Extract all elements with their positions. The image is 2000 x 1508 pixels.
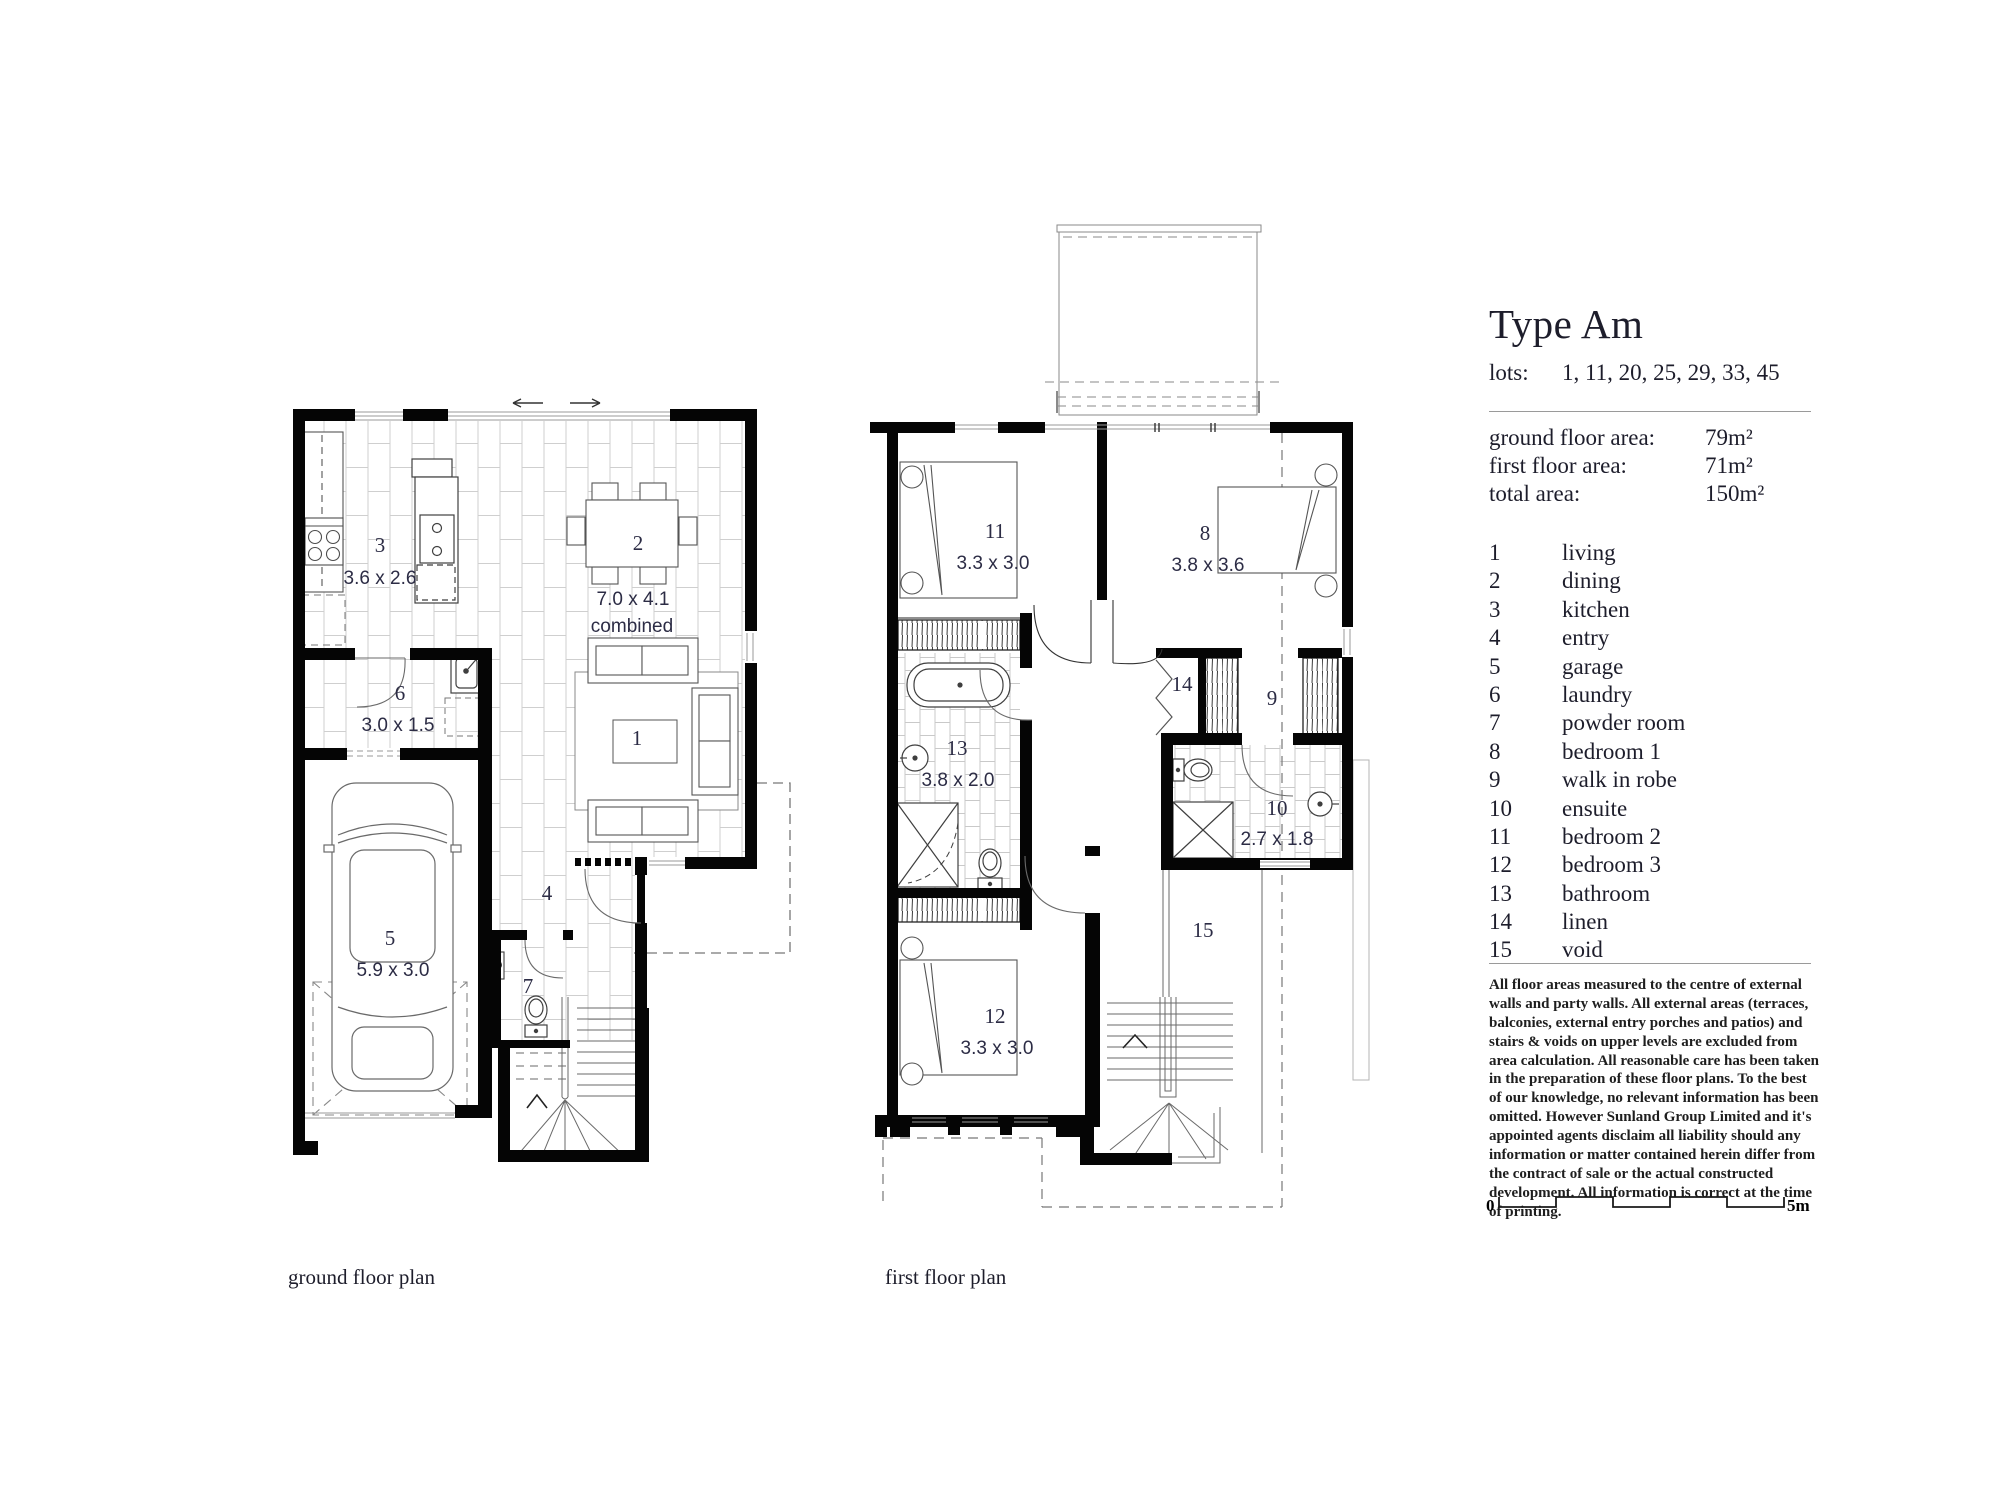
room-number: 8 <box>1489 739 1501 764</box>
room-name: bedroom 3 <box>1562 852 1661 878</box>
room-number: 1 <box>1489 540 1501 565</box>
kitchen-island-icon <box>412 459 458 603</box>
room-number: 2 <box>1489 568 1501 593</box>
area-label: total area: <box>1489 481 1580 506</box>
room-number: 14 <box>1489 909 1512 934</box>
room-number: 15 <box>1489 937 1512 962</box>
room-number: 7 <box>1489 710 1501 735</box>
room-row: 7 powder room <box>1489 710 1829 738</box>
room-name: ensuite <box>1562 796 1627 822</box>
label-dining: 2 <box>633 531 644 555</box>
room-number: 10 <box>1489 796 1512 821</box>
label-dining-dim: 7.0 x 4.1 <box>597 589 670 610</box>
room-name: kitchen <box>1562 597 1630 623</box>
lots-row: lots: 1, 11, 20, 25, 29, 33, 45 <box>1489 360 1829 386</box>
lots-values: 1, 11, 20, 25, 29, 33, 45 <box>1562 360 1780 386</box>
label-bath-dim: 3.8 x 2.0 <box>922 770 995 791</box>
area-row: first floor area: 71m² <box>1489 453 1829 481</box>
scale-end: 5m <box>1787 1196 1810 1215</box>
toilet-icon <box>1173 759 1212 781</box>
room-row: 15 void <box>1489 937 1829 965</box>
room-name: living <box>1562 540 1616 566</box>
area-row: total area: 150m² <box>1489 481 1829 509</box>
label-laundry-dim: 3.0 x 1.5 <box>362 715 435 736</box>
first-floor-caption: first floor plan <box>885 1265 1006 1290</box>
room-name: garage <box>1562 654 1623 680</box>
room-number: 3 <box>1489 597 1501 622</box>
room-row: 5 garage <box>1489 654 1829 682</box>
scale-bar: 0 5m <box>1484 1194 1830 1220</box>
bathtub-icon <box>907 663 1010 707</box>
coffee-table-icon <box>613 720 677 763</box>
room-row: 6 laundry <box>1489 682 1829 710</box>
label-bed1: 8 <box>1200 521 1211 545</box>
room-legend: 1 living 2 dining 3 kitchen 4 entry 5 ga… <box>1489 540 1829 966</box>
label-linen: 14 <box>1172 672 1194 696</box>
floor-plan-sheet: 1 2 7.0 x 4.1 combined 3 3.6 x 2.6 4 5 5… <box>0 0 2000 1508</box>
room-number: 11 <box>1489 824 1511 849</box>
label-entry: 4 <box>542 881 553 905</box>
disclaimer-text: All floor areas measured to the centre o… <box>1489 976 1823 1222</box>
room-row: 1 living <box>1489 540 1829 568</box>
label-powder: 7 <box>523 974 534 998</box>
label-bed3-dim: 3.3 x 3.0 <box>961 1038 1034 1059</box>
up-arrow-icon <box>527 1095 547 1108</box>
room-row: 10 ensuite <box>1489 796 1829 824</box>
label-kitchen-dim: 3.6 x 2.6 <box>344 568 417 589</box>
label-bed2: 11 <box>985 519 1005 543</box>
scale-bar-line <box>1499 1197 1784 1207</box>
bed-icon <box>1218 464 1337 597</box>
room-name: void <box>1562 937 1603 963</box>
label-kitchen: 3 <box>375 533 386 557</box>
shower-icon <box>897 803 958 887</box>
label-bed3: 12 <box>985 1004 1006 1028</box>
label-bath: 13 <box>947 736 968 760</box>
room-row: 11 bedroom 2 <box>1489 824 1829 852</box>
up-arrow-icon <box>1123 1035 1147 1048</box>
label-living: 1 <box>632 726 643 750</box>
area-value: 71m² <box>1705 453 1753 479</box>
terrace-outline <box>1045 225 1283 415</box>
stairs-icon <box>1107 870 1262 1163</box>
room-name: dining <box>1562 568 1621 594</box>
label-laundry: 6 <box>395 681 406 705</box>
room-number: 9 <box>1489 767 1501 792</box>
room-row: 4 entry <box>1489 625 1829 653</box>
area-value: 79m² <box>1705 425 1753 451</box>
bifold-door-icon <box>1156 660 1172 735</box>
label-void: 15 <box>1193 918 1214 942</box>
area-label: ground floor area: <box>1489 425 1655 450</box>
room-name: laundry <box>1562 682 1632 708</box>
area-table: ground floor area: 79m² first floor area… <box>1489 425 1829 509</box>
room-name: linen <box>1562 909 1608 935</box>
room-number: 5 <box>1489 654 1501 679</box>
kitchen-counter <box>302 432 343 592</box>
scale-start: 0 <box>1486 1196 1495 1215</box>
room-name: bathroom <box>1562 881 1650 907</box>
side-projection <box>1353 760 1369 1080</box>
area-row: ground floor area: 79m² <box>1489 425 1829 453</box>
room-number: 12 <box>1489 852 1512 877</box>
room-name: entry <box>1562 625 1609 651</box>
label-robe: 9 <box>1267 686 1278 710</box>
toilet-icon <box>978 849 1002 890</box>
label-ensuite: 10 <box>1267 796 1288 820</box>
room-row: 9 walk in robe <box>1489 767 1829 795</box>
label-bed1-dim: 3.8 x 3.6 <box>1172 555 1245 576</box>
label-bed2-dim: 3.3 x 3.0 <box>957 553 1030 574</box>
stove-icon <box>305 518 343 565</box>
area-value: 150m² <box>1705 481 1764 507</box>
type-title: Type Am <box>1489 300 1643 348</box>
room-number: 6 <box>1489 682 1501 707</box>
area-label: first floor area: <box>1489 453 1627 478</box>
label-ensuite-dim: 2.7 x 1.8 <box>1241 829 1314 850</box>
room-number: 4 <box>1489 625 1501 650</box>
toilet-icon <box>525 996 547 1037</box>
room-row: 13 bathroom <box>1489 881 1829 909</box>
divider <box>1489 411 1811 412</box>
shower-icon <box>1173 802 1233 858</box>
divider <box>1489 963 1811 964</box>
room-name: bedroom 1 <box>1562 739 1661 765</box>
first-floor-plan-drawing: 8 3.8 x 3.6 9 10 2.7 x 1.8 11 3.3 x 3.0 … <box>860 215 1420 1225</box>
room-row: 2 dining <box>1489 568 1829 596</box>
room-number: 13 <box>1489 881 1512 906</box>
ground-floor-plan-drawing: 1 2 7.0 x 4.1 combined 3 3.6 x 2.6 4 5 5… <box>280 395 850 1185</box>
label-garage-dim: 5.9 x 3.0 <box>357 960 430 981</box>
room-name: powder room <box>1562 710 1685 736</box>
room-row: 8 bedroom 1 <box>1489 739 1829 767</box>
label-dining-note: combined <box>591 616 673 637</box>
ground-floor-caption: ground floor plan <box>288 1265 435 1290</box>
label-garage: 5 <box>385 926 396 950</box>
slider-arrows-icon <box>513 399 600 407</box>
room-name: walk in robe <box>1562 767 1677 793</box>
room-row: 14 linen <box>1489 909 1829 937</box>
room-row: 12 bedroom 3 <box>1489 852 1829 880</box>
room-name: bedroom 2 <box>1562 824 1661 850</box>
room-row: 3 kitchen <box>1489 597 1829 625</box>
lots-label: lots: <box>1489 360 1529 385</box>
